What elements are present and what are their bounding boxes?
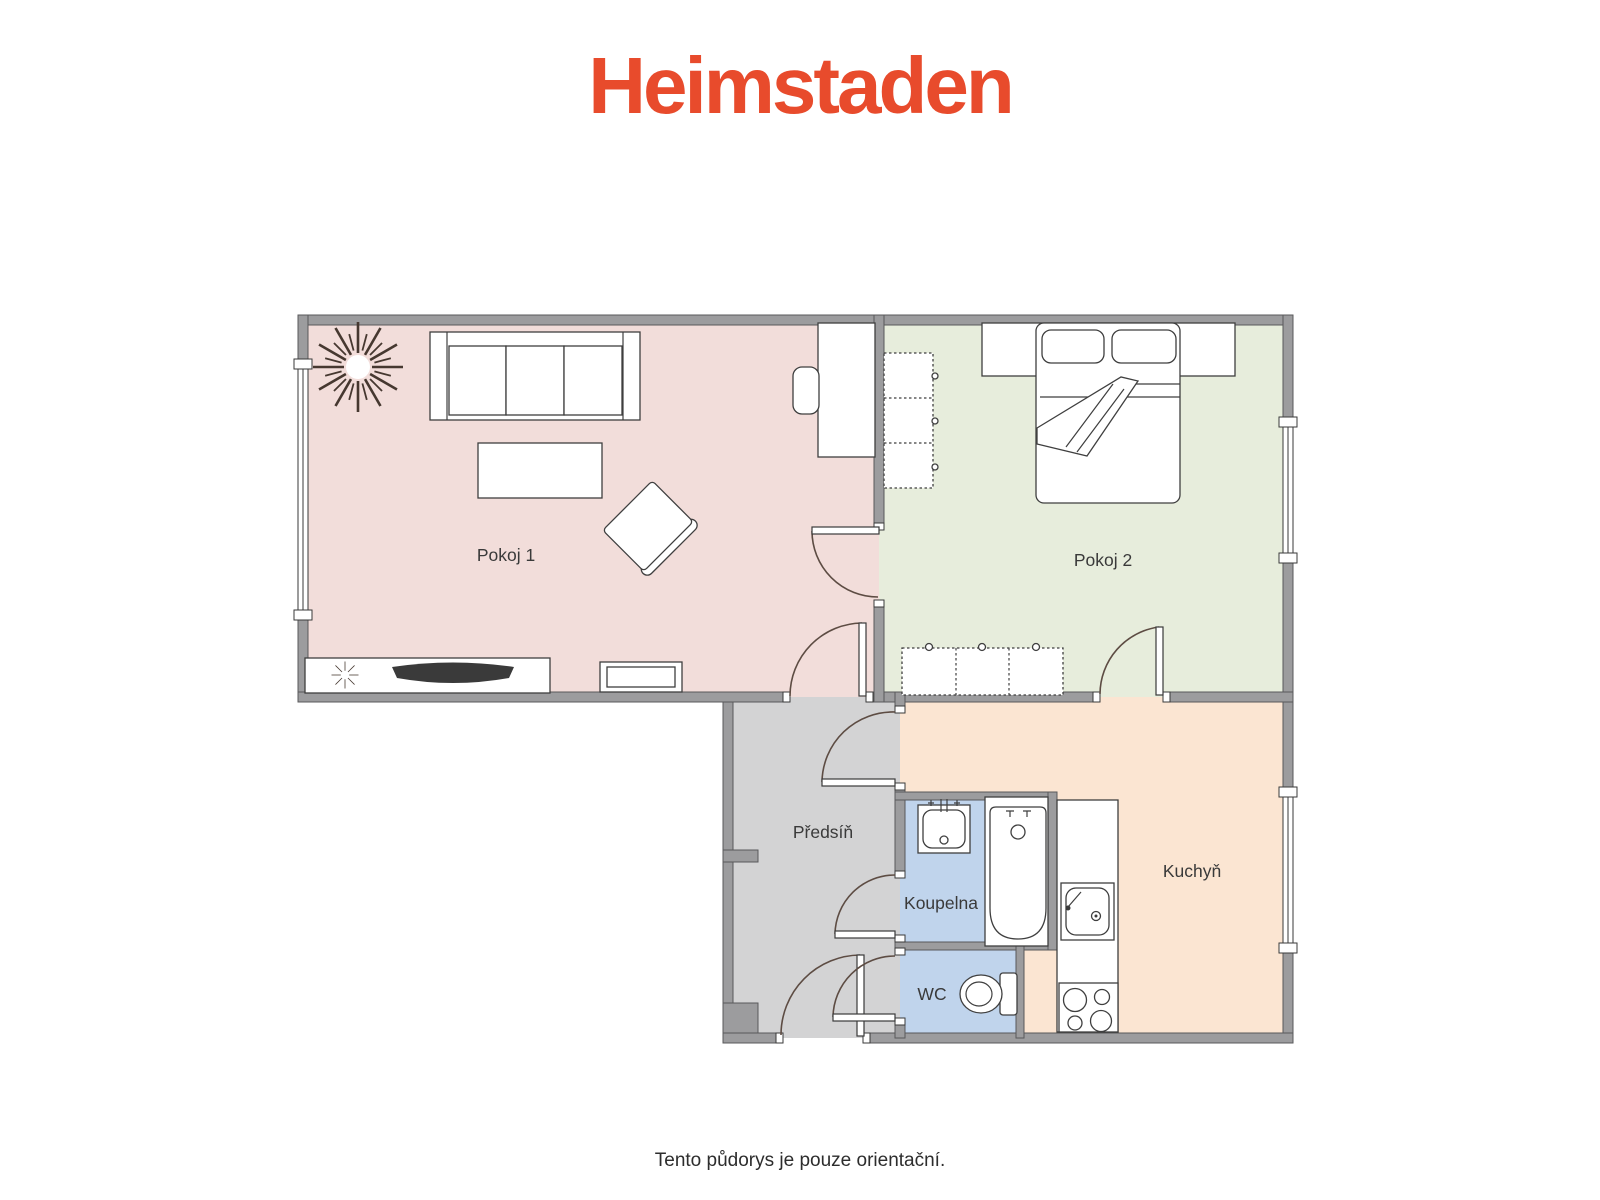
page: Heimstaden	[0, 0, 1600, 1200]
pokoj-1-label: Pokoj 1	[477, 545, 535, 565]
sofa	[430, 332, 640, 420]
bathtub	[985, 797, 1048, 946]
wc-label: WC	[917, 984, 946, 1004]
kitchen-sink	[1061, 883, 1114, 940]
tv-icon	[392, 663, 514, 684]
floor-plan: Pokoj 1 Pokoj 2 Předsíň Koupelna WC Kuch…	[0, 0, 1600, 1200]
desk	[818, 323, 875, 457]
wardrobe	[884, 353, 938, 488]
cabinet	[600, 662, 682, 692]
dresser	[902, 644, 1063, 696]
koupelna-label: Koupelna	[904, 893, 978, 913]
desk-chair	[793, 367, 819, 414]
figurine-icon	[332, 662, 359, 689]
bathroom-sink	[918, 799, 970, 853]
toilet	[960, 973, 1017, 1015]
stove	[1059, 983, 1118, 1032]
pokoj-2-label: Pokoj 2	[1074, 550, 1132, 570]
coffee-table	[478, 443, 602, 498]
kuchyn-label: Kuchyň	[1163, 861, 1221, 881]
predsin-floor	[728, 697, 900, 1038]
predsin-label: Předsíň	[793, 822, 853, 842]
disclaimer-note: Tento půdorys je pouze orientační.	[0, 1150, 1600, 1172]
